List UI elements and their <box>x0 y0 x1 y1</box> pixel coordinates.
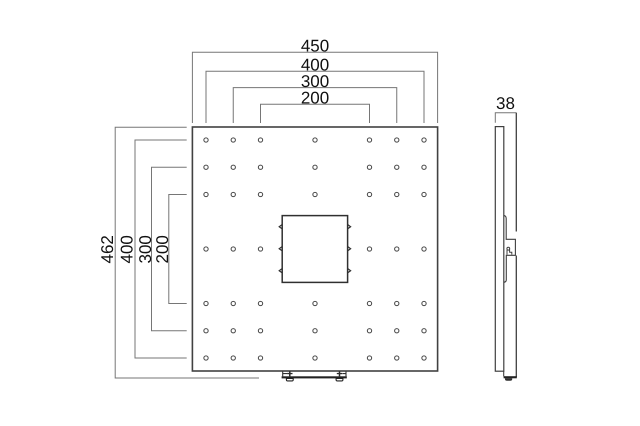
svg-text:462: 462 <box>98 235 117 263</box>
svg-text:450: 450 <box>301 37 329 56</box>
svg-text:200: 200 <box>153 235 172 263</box>
svg-text:400: 400 <box>117 235 136 263</box>
svg-text:38: 38 <box>496 94 515 113</box>
svg-text:200: 200 <box>301 89 329 108</box>
